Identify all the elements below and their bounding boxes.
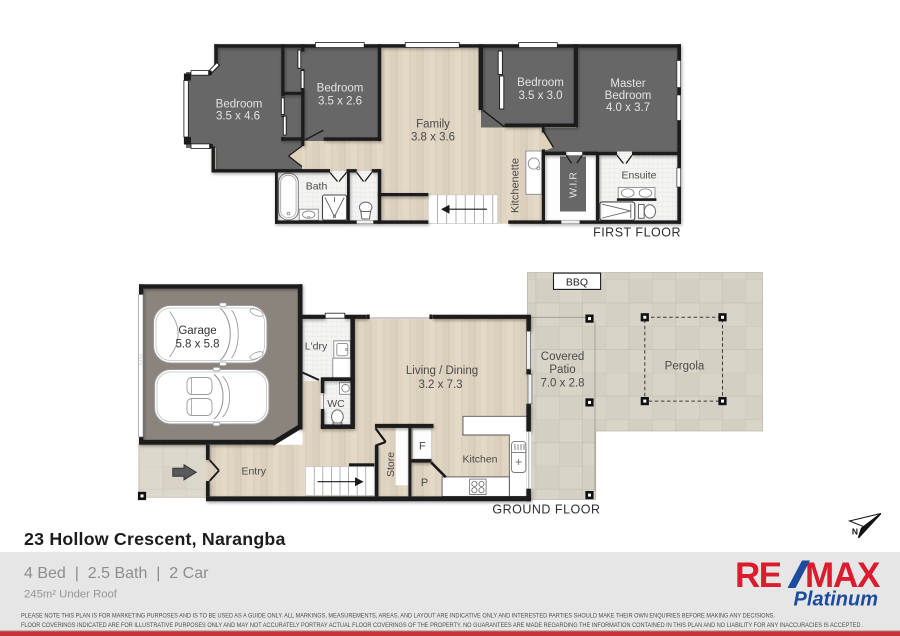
svg-text:N: N — [852, 527, 858, 537]
svg-text:Pergola: Pergola — [665, 361, 705, 373]
svg-text:Platinum: Platinum — [794, 589, 878, 611]
svg-text:FLOOR COVERINGS INDICATED ARE: FLOOR COVERINGS INDICATED ARE FOR ILLUST… — [21, 622, 864, 630]
svg-text:Bath: Bath — [306, 181, 328, 193]
svg-text:Kitchenette: Kitchenette — [510, 158, 522, 213]
svg-text:3.5 x 3.0: 3.5 x 3.0 — [518, 90, 562, 102]
svg-text:FIRST FLOOR: FIRST FLOOR — [593, 226, 681, 240]
svg-text:Entry: Entry — [241, 466, 266, 478]
svg-text:Covered: Covered — [541, 351, 584, 363]
svg-text:4.0 x 3.7: 4.0 x 3.7 — [606, 102, 650, 114]
svg-text:Bedroom: Bedroom — [317, 83, 364, 95]
svg-text:7.0 x 2.8: 7.0 x 2.8 — [540, 378, 584, 390]
svg-text:Patio: Patio — [549, 364, 575, 376]
svg-text:Store: Store — [385, 452, 397, 477]
svg-text:Master: Master — [610, 78, 645, 90]
svg-text:5.8 x 5.8: 5.8 x 5.8 — [175, 339, 219, 351]
svg-text:PLEASE NOTE THIS PLAN IS FOR M: PLEASE NOTE THIS PLAN IS FOR MARKETING P… — [21, 612, 775, 620]
svg-text:245m² Under Roof: 245m² Under Roof — [24, 589, 118, 601]
svg-text:L'dry: L'dry — [305, 341, 328, 353]
svg-text:RE: RE — [735, 556, 781, 595]
svg-text:W.I.R: W.I.R — [568, 172, 580, 198]
svg-text:BBQ: BBQ — [566, 277, 588, 289]
svg-text:Garage: Garage — [178, 325, 216, 337]
svg-text:Living / Dining: Living / Dining — [406, 365, 478, 377]
svg-text:Kitchen: Kitchen — [462, 454, 497, 466]
svg-text:3.5 x 4.6: 3.5 x 4.6 — [216, 111, 260, 123]
svg-text:Family: Family — [416, 119, 450, 131]
svg-text:3.2 x 7.3: 3.2 x 7.3 — [418, 379, 462, 391]
svg-text:Bedroom: Bedroom — [605, 90, 652, 102]
svg-text:Ensuite: Ensuite — [621, 170, 656, 182]
svg-text:WC: WC — [327, 398, 345, 410]
svg-text:23 Hollow Crescent, Narangba: 23 Hollow Crescent, Narangba — [24, 529, 286, 549]
svg-text:4 Bed | 2.5 Bath | 2 Car: 4 Bed | 2.5 Bath | 2 Car — [24, 565, 209, 582]
svg-text:3.8 x 3.6: 3.8 x 3.6 — [411, 132, 455, 144]
svg-text:F: F — [419, 441, 426, 453]
svg-text:GROUND FLOOR: GROUND FLOOR — [492, 503, 600, 517]
svg-text:Bedroom: Bedroom — [216, 99, 263, 111]
svg-text:3.5 x 2.6: 3.5 x 2.6 — [318, 96, 362, 108]
svg-text:P: P — [421, 477, 428, 489]
svg-text:Bedroom: Bedroom — [517, 77, 564, 89]
